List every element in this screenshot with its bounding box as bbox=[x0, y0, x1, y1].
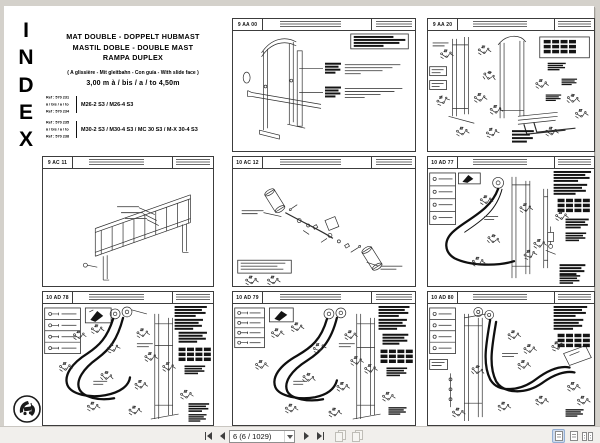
panel-header: 10 AD 77 bbox=[428, 157, 594, 169]
page-number-value: 6 (6 / 1029) bbox=[230, 432, 284, 441]
backrest-legs bbox=[103, 224, 188, 281]
panel-header: 10 AD 80 bbox=[428, 292, 594, 304]
small-parts bbox=[289, 205, 360, 253]
single-page-view-button[interactable] bbox=[552, 429, 565, 443]
header-fine-print bbox=[263, 19, 371, 30]
arrow-right-icon bbox=[317, 432, 322, 440]
left-legend bbox=[430, 308, 456, 369]
chevron-down-icon[interactable] bbox=[284, 431, 294, 442]
mast-outline bbox=[243, 39, 321, 139]
left-legend bbox=[235, 308, 265, 348]
panel-drawing bbox=[428, 31, 594, 151]
index-subtitle: ( A glissière - Mit gleitbahn - Con guía… bbox=[42, 70, 224, 76]
next-page-button[interactable] bbox=[300, 430, 313, 442]
hose-pulleys bbox=[324, 308, 346, 319]
panel-id: 9 AA 00 bbox=[233, 19, 263, 30]
panel-header: 10 AD 79 bbox=[233, 292, 415, 304]
panel-10-ad-77: 10 AD 77 bbox=[427, 156, 595, 287]
panel-drawing bbox=[233, 169, 415, 286]
hydraulic-hose-drawing bbox=[428, 169, 594, 286]
panel-10-ad-79: 10 AD 79 bbox=[232, 291, 416, 426]
panel-drawing bbox=[428, 169, 594, 286]
forklift-logo-icon bbox=[12, 394, 42, 424]
hydraulic-hose bbox=[78, 318, 123, 399]
header-ref-block bbox=[371, 157, 415, 168]
index-title-block: MAT DOUBLE - DOPPELT HUBMAST MASTIL DOBL… bbox=[42, 32, 224, 144]
ref-to: Ref : 570 234 bbox=[46, 109, 63, 113]
arrow-left-icon bbox=[207, 432, 212, 440]
ref-from: Ref : 570 235 bbox=[46, 120, 63, 124]
panel-id: 10 AD 80 bbox=[428, 292, 458, 303]
header-fine-print bbox=[458, 19, 554, 30]
index-letter: N bbox=[18, 47, 33, 68]
panel-id: 10 AD 78 bbox=[43, 292, 73, 303]
valve-cluster bbox=[546, 227, 556, 255]
mast-outline bbox=[353, 314, 381, 419]
panel-10-ad-78: 10 AD 78 bbox=[42, 291, 214, 426]
panel-header: 9 AA 00 bbox=[233, 19, 415, 31]
carriage-bracket bbox=[564, 346, 592, 366]
panel-9-aa-00: 9 AA 00 bbox=[232, 18, 416, 152]
panel-9-ac-11: 9 AC 11 bbox=[42, 156, 214, 287]
legend-table bbox=[540, 37, 590, 58]
ref-stack bbox=[512, 130, 534, 142]
hydraulic-hose bbox=[486, 320, 570, 389]
header-fine-print bbox=[458, 292, 554, 303]
single-page-icon bbox=[555, 431, 563, 441]
header-ref-block bbox=[371, 292, 415, 303]
header-fine-print bbox=[73, 292, 172, 303]
continuous-page-icon bbox=[570, 431, 578, 441]
index-title-line-3: RAMPA DUPLEX bbox=[42, 53, 224, 64]
last-page-bar bbox=[323, 432, 325, 440]
next-view-button[interactable] bbox=[351, 430, 365, 443]
continuous-view-button[interactable] bbox=[567, 429, 580, 443]
legend-box bbox=[238, 260, 292, 273]
ref-from: Ref : 570 231 bbox=[46, 95, 63, 99]
panel-drawing bbox=[233, 304, 415, 425]
index-letter: X bbox=[19, 129, 33, 150]
panel-drawing bbox=[233, 31, 415, 151]
model-list: M26-2 S3 / M26-4 S3 bbox=[81, 102, 133, 108]
panel-drawing bbox=[43, 169, 213, 286]
ref-join: à / bis / a / to bbox=[46, 102, 63, 106]
index-panel: I N D E X MAT DOUBLE - DOPPELT HUBMAST M… bbox=[12, 18, 226, 152]
brand-logo bbox=[12, 394, 42, 424]
first-page-bar bbox=[205, 432, 207, 440]
model-list: M30-2 S3 / M30-4 S3 / MC 30 S3 / M-X 30-… bbox=[81, 127, 198, 133]
reference-divider bbox=[76, 96, 77, 113]
index-vertical-title: I N D E X bbox=[14, 20, 38, 150]
index-reference-list: Ref : 570 231 à / bis / a / to Ref : 570… bbox=[42, 94, 224, 141]
callout-scatter bbox=[436, 46, 589, 138]
panel-header: 9 AC 11 bbox=[43, 157, 213, 169]
roller-top bbox=[264, 187, 286, 214]
callout-scatter bbox=[60, 325, 194, 415]
arrow-icon-box bbox=[269, 308, 293, 322]
hydraulic-hose-drawing bbox=[43, 304, 213, 425]
legend-box bbox=[351, 34, 409, 49]
header-ref-block bbox=[172, 292, 213, 303]
first-page-button[interactable] bbox=[202, 430, 215, 442]
panel-10-ac-12: 10 AC 12 bbox=[232, 156, 416, 287]
panel-id: 9 AA 20 bbox=[428, 19, 458, 30]
reference-numbers: Ref : 570 235 à / bis / a / to Ref : 570… bbox=[46, 119, 76, 140]
facing-pages-icon bbox=[588, 432, 593, 441]
facing-pages-icon bbox=[582, 432, 587, 441]
panel-header: 10 AC 12 bbox=[233, 157, 415, 169]
header-fine-print bbox=[263, 157, 371, 168]
page-number-combobox[interactable]: 6 (6 / 1029) bbox=[229, 430, 295, 443]
navigation-toolbar: 6 (6 / 1029) bbox=[0, 426, 600, 443]
pdf-viewer-window: I N D E X MAT DOUBLE - DOPPELT HUBMAST M… bbox=[0, 0, 600, 443]
panel-id: 10 AD 79 bbox=[233, 292, 263, 303]
index-reference-row: Ref : 570 231 à / bis / a / to Ref : 570… bbox=[46, 94, 224, 116]
ref-to: Ref : 570 238 bbox=[46, 134, 63, 138]
arrow-right-icon bbox=[304, 432, 309, 440]
header-ref-block bbox=[172, 157, 213, 168]
last-page-button[interactable] bbox=[314, 430, 327, 442]
header-ref-block bbox=[554, 292, 594, 303]
panel-drawing bbox=[428, 304, 594, 425]
left-legend bbox=[430, 173, 456, 225]
roller-bottom bbox=[361, 245, 383, 272]
reference-numbers: Ref : 570 231 à / bis / a / to Ref : 570… bbox=[46, 94, 76, 115]
index-letter: E bbox=[19, 102, 33, 123]
hydraulic-hose bbox=[286, 318, 337, 400]
roller-chain-drawing bbox=[233, 169, 415, 286]
header-ref-block bbox=[554, 157, 594, 168]
hydraulic-hose-drawing bbox=[428, 304, 594, 425]
panel-id: 9 AC 11 bbox=[43, 157, 73, 168]
fitting-column bbox=[449, 373, 452, 407]
hose-pulleys bbox=[110, 307, 147, 319]
arrow-icon-box bbox=[85, 308, 111, 323]
chain-segment bbox=[285, 213, 333, 239]
arrow-icon-box bbox=[458, 173, 480, 184]
panel-id: 10 AC 12 bbox=[233, 157, 263, 168]
panel-header: 9 AA 20 bbox=[428, 19, 594, 31]
page-stack-icon bbox=[335, 432, 343, 442]
panel-9-aa-20: 9 AA 20 bbox=[427, 18, 595, 152]
reference-divider bbox=[76, 121, 77, 138]
mast-assembly-drawing bbox=[233, 31, 415, 151]
panel-header: 10 AD 78 bbox=[43, 292, 213, 304]
panel-id: 10 AD 77 bbox=[428, 157, 458, 168]
index-letter: D bbox=[18, 75, 33, 96]
header-ref-block bbox=[554, 19, 594, 30]
callout-upper bbox=[299, 63, 400, 74]
previous-view-button[interactable] bbox=[334, 430, 348, 443]
ref-join: à / bis / a / to bbox=[46, 127, 63, 131]
backrest-rail bbox=[95, 195, 190, 256]
exploded-mast-drawing bbox=[428, 31, 594, 151]
index-reference-row: Ref : 570 235 à / bis / a / to Ref : 570… bbox=[46, 119, 224, 141]
hydraulic-hose bbox=[274, 319, 336, 398]
hook-detail bbox=[83, 263, 97, 267]
index-range-label: 3,00 m à / bis / a / to 4,50m bbox=[42, 80, 224, 87]
header-ref-block bbox=[371, 19, 415, 30]
facing-pages-view-button[interactable] bbox=[581, 429, 594, 443]
panel-drawing bbox=[43, 304, 213, 425]
previous-page-button[interactable] bbox=[216, 430, 229, 442]
header-fine-print bbox=[263, 292, 371, 303]
load-backrest-drawing bbox=[43, 169, 213, 286]
panel-10-ad-80: 10 AD 80 bbox=[427, 291, 595, 426]
mast-outline bbox=[512, 177, 548, 278]
index-title-line-2: MASTIL DOBLE - DOUBLE MAST bbox=[42, 43, 224, 54]
page-stack-icon bbox=[352, 432, 360, 442]
hose-pulley bbox=[493, 177, 504, 188]
arrow-left-icon bbox=[220, 432, 225, 440]
header-fine-print bbox=[73, 157, 172, 168]
callout-lower bbox=[299, 87, 402, 98]
header-fine-print bbox=[458, 157, 554, 168]
hose-pulleys bbox=[474, 307, 494, 319]
index-letter: I bbox=[23, 20, 29, 41]
left-legend bbox=[45, 308, 81, 354]
document-page: I N D E X MAT DOUBLE - DOPPELT HUBMAST M… bbox=[4, 6, 594, 426]
index-title-line-1: MAT DOUBLE - DOPPELT HUBMAST bbox=[42, 32, 224, 43]
mast-outline bbox=[464, 314, 486, 421]
hydraulic-hose-drawing bbox=[233, 304, 415, 425]
